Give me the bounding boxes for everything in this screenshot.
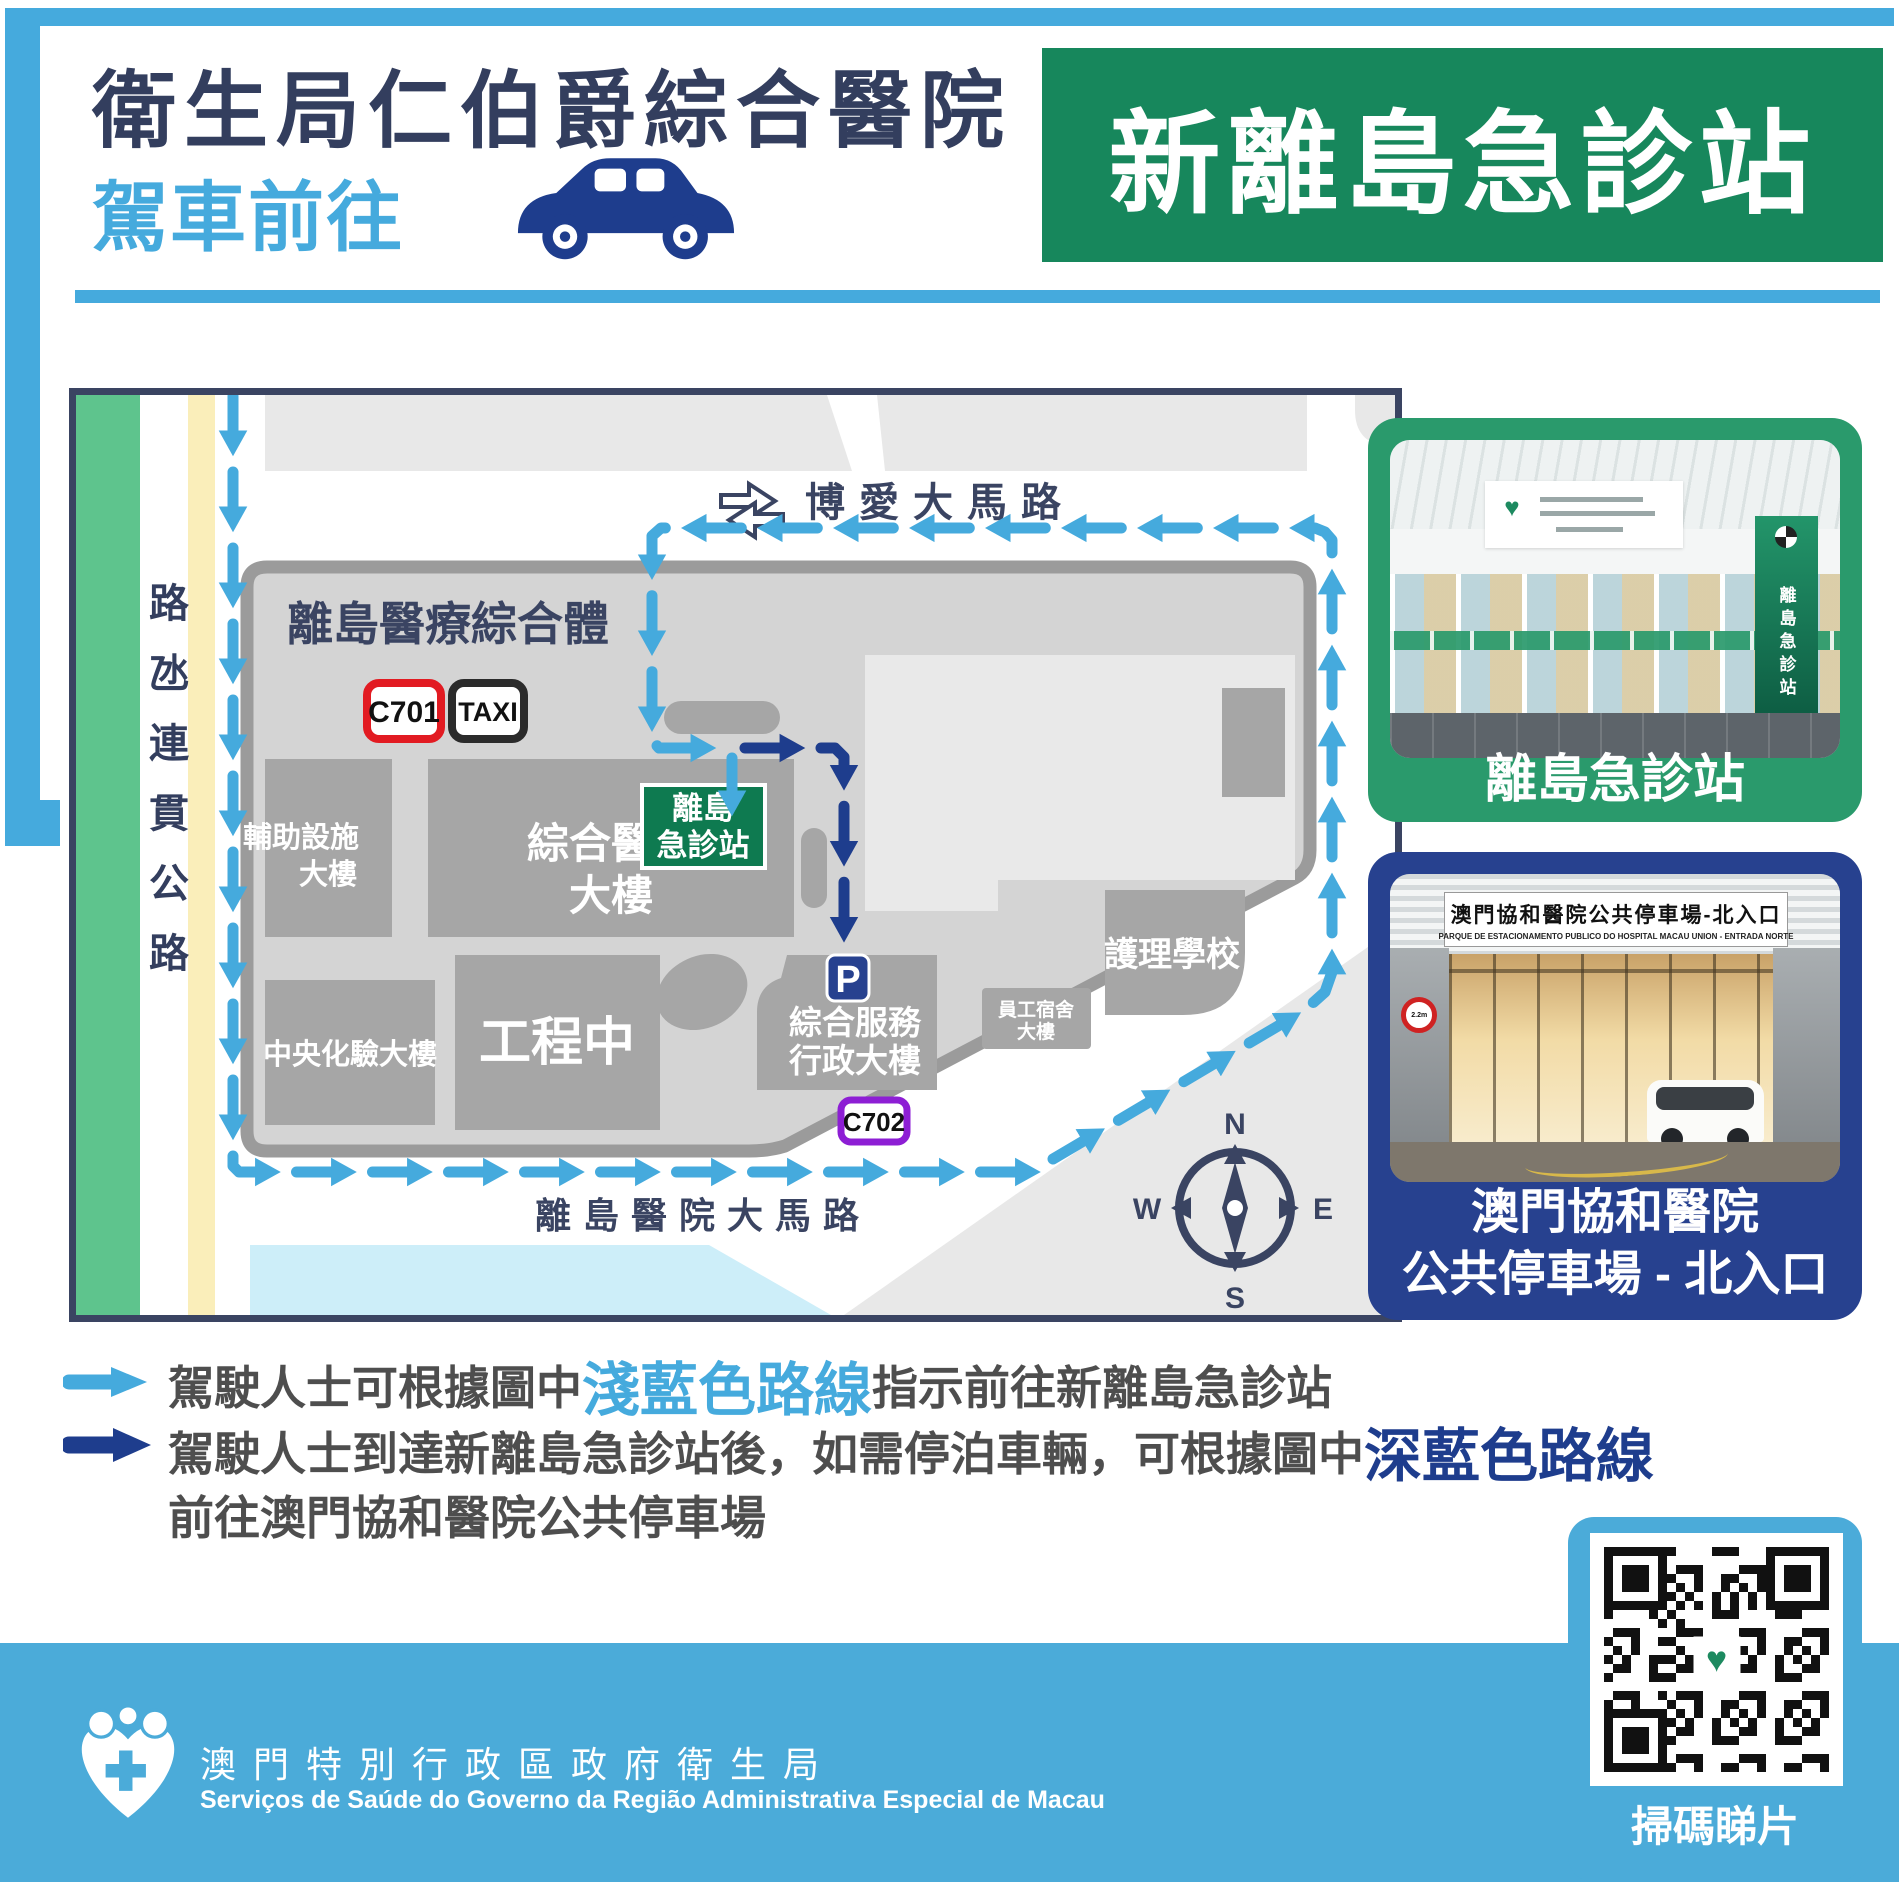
building-hospital-label-2: 大樓 (569, 872, 653, 919)
poster: 衛生局仁伯爵綜合醫院 駕車前往 新離島急診站 (0, 0, 1899, 1882)
sign-text-bar (1556, 527, 1623, 532)
photo-parking-caption-2: 公共停車場 - 北入口 (1368, 1234, 1862, 1304)
photo-er-sign: ♥ (1485, 481, 1683, 548)
building-small-annex (1222, 688, 1285, 797)
compass-n: N (1224, 1108, 1246, 1141)
divider-rule (75, 290, 1880, 303)
legend-1-pre: 駕駛人士可根據圖中 (168, 1362, 582, 1414)
photo-parking-sign: 澳門協和醫院公共停車場-北入口 PARQUE DE ESTACIONAMENTO… (1444, 892, 1788, 946)
left-border-step (40, 800, 60, 846)
complex-label: 離島醫療綜合體 (287, 598, 609, 650)
north-block (265, 395, 1307, 471)
er-station-banner-label: 新離島急診站 (1109, 74, 1817, 236)
health-bureau-logo-icon: ♥ (1504, 492, 1519, 523)
building-lab-label: 中央化驗大樓 (263, 1037, 437, 1071)
photo-er-panel-text: 離島急診站 (1774, 586, 1799, 701)
dropoff-island (664, 701, 780, 734)
er-box-label-1: 離島 (672, 791, 734, 826)
parking-sign-pt: PARQUE DE ESTACIONAMENTO PUBLICO DO HOSP… (1439, 932, 1794, 941)
photo-er-image: ♥ 離島急診站 (1390, 440, 1840, 758)
org-name-zh: 澳門特別行政區政府衛生局 (200, 1736, 836, 1788)
bus-stop-c701-badge: C701 (367, 683, 441, 739)
campus-map: 離島醫療綜合體 輔助設施 大樓 綜合醫院 大樓 中央化驗大樓 工程中 綜合服務 … (69, 388, 1402, 1322)
legend-1-highlight: 淺藍色路線 (582, 1358, 872, 1423)
top-border-bar (5, 8, 1894, 26)
er-station-map-box: 離島 急診站 (642, 785, 765, 868)
c701-label: C701 (368, 696, 440, 729)
photo-er-caption: 離島急診站 (1368, 737, 1862, 812)
compass-w: W (1133, 1193, 1162, 1226)
road-left-label: 路氹連貫公路 (134, 582, 194, 1002)
building-admin-label-1: 綜合服務 (789, 1004, 922, 1041)
building-admin-label-2: 行政大樓 (788, 1042, 921, 1079)
photo-parking-caption-1: 澳門協和醫院 (1368, 1172, 1862, 1242)
highway-green-stripe (76, 395, 140, 1315)
legend-2-pre: 駕駛人士到達新離島急診站後，如需停泊車輛，可根據圖中 (168, 1428, 1364, 1480)
legend-1-post: 指示前往新離島急診站 (872, 1362, 1332, 1414)
parking-icon: P (827, 955, 869, 1001)
parking-sign-zh: 澳門協和醫院公共停車場-北入口 (1451, 899, 1782, 929)
photo-parking-car (1647, 1080, 1764, 1142)
building-works-label: 工程中 (479, 1014, 635, 1072)
taxi-label: TAXI (458, 697, 518, 727)
c702-label: C702 (843, 1107, 905, 1137)
road-bottom-label: 離島醫院大馬路 (535, 1195, 871, 1236)
building-aux-label-1: 輔助設施 (243, 820, 359, 854)
page-subtitle: 駕車前往 (92, 156, 404, 266)
legend-light-route-arrow-icon (63, 1366, 149, 1398)
hospital-logo-icon (1775, 526, 1797, 548)
photo-er-green-panel: 離島急診站 (1755, 516, 1818, 720)
building-nursing-label: 護理學校 (1104, 936, 1240, 974)
small-island (801, 828, 827, 908)
photo-parking-card: 2.2m 澳門協和醫院公共停車場-北入口 PARQUE DE ESTACIONA… (1368, 852, 1862, 1320)
sign-text-bar (1540, 497, 1643, 502)
qr-code: ♥ (1590, 1533, 1843, 1786)
sign-text-bar (1540, 511, 1655, 516)
qr-caption: 掃碼睇片 (1568, 1793, 1862, 1854)
car-window (1656, 1087, 1754, 1110)
legend-dark-route-arrow-icon (63, 1426, 153, 1464)
legend-line-2: 駕駛人士到達新離島急診站後，如需停泊車輛，可根據圖中深藍色路線 (168, 1424, 1654, 1491)
legend-2-highlight: 深藍色路線 (1364, 1424, 1654, 1489)
bus-stop-c702-badge: C702 (841, 1100, 907, 1142)
er-station-banner: 新離島急診站 (1042, 48, 1883, 262)
building-dorm-label-2: 大樓 (1017, 1020, 1055, 1043)
building-aux-label-2: 大樓 (299, 858, 357, 891)
car-icon (492, 146, 760, 268)
compass-s: S (1225, 1282, 1245, 1315)
er-box-label-2: 急診站 (657, 828, 750, 863)
taxi-stand-badge: TAXI (452, 683, 524, 739)
road-top-label: 博愛大馬路 (805, 481, 1075, 525)
legend-line-1: 駕駛人士可根據圖中淺藍色路線指示前往新離島急診站 (168, 1358, 1332, 1425)
building-dorm-label-1: 員工宿舍 (998, 998, 1075, 1021)
parking-label: P (835, 959, 860, 1001)
left-border-bar (5, 8, 40, 846)
photo-er-card: ♥ 離島急診站 離島急診站 (1368, 418, 1862, 822)
photo-parking-image: 2.2m 澳門協和醫院公共停車場-北入口 PARQUE DE ESTACIONA… (1390, 874, 1840, 1182)
org-name-pt: Serviços de Saúde do Governo da Região A… (200, 1786, 1105, 1815)
compass-e: E (1313, 1193, 1333, 1226)
legend-line-3: 前往澳門協和醫院公共停車場 (168, 1492, 766, 1545)
qr-center-logo-icon: ♥ (1693, 1636, 1740, 1683)
gov-health-logo-icon (72, 1700, 184, 1828)
